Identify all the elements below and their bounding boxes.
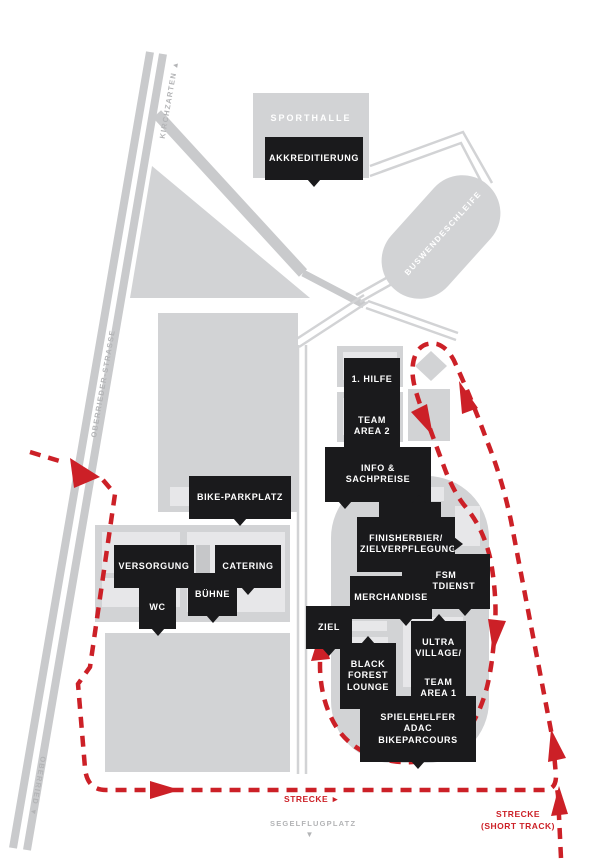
label-info-sachpreise: INFO & SACHPREISE	[325, 447, 431, 502]
label-text: BLACK FOREST LOUNGE	[347, 659, 389, 692]
arrow-diagonal-up	[548, 729, 566, 762]
label-text: VERSORGUNG	[118, 561, 189, 571]
event-site-map: SPORTHALLE BUSWENDESCHLEIFE KIRCHZARTEN …	[0, 0, 607, 862]
arrow-stadium-down	[488, 619, 506, 652]
label-text: ZIEL	[318, 622, 340, 632]
segelflugplatz-arrow-icon: ▼	[270, 830, 350, 839]
strecke-label: STRECKE ►	[282, 794, 342, 806]
label-text: MERCHANDISE	[354, 592, 428, 602]
arrow-strecke-right	[150, 781, 180, 799]
sporthalle-label: SPORTHALLE	[253, 113, 369, 123]
label-pointer-up	[432, 614, 446, 622]
label-pointer-down	[322, 648, 336, 656]
label-text: 1. HILFE	[352, 374, 393, 384]
label-merchandise: MERCHANDISE	[350, 576, 432, 619]
junction-east-road-b	[368, 301, 458, 333]
sporthalle-bus-road-outer	[370, 132, 492, 183]
label-text: TEAM AREA 2	[354, 415, 390, 437]
label-erste-hilfe: 1. HILFE	[344, 358, 400, 401]
junction-south-road-b	[295, 295, 364, 340]
label-pointer-down	[241, 587, 255, 595]
course-entry-dashes	[30, 452, 66, 463]
label-text: CATERING	[222, 561, 273, 571]
label-pointer-down	[206, 615, 220, 623]
label-pointer-down	[233, 518, 247, 526]
label-pointer-down	[338, 501, 352, 509]
label-wc: WC	[139, 586, 176, 629]
label-pointer-down	[411, 761, 425, 769]
label-pointer-up	[432, 654, 446, 662]
label-text: INFO & SACHPREISE	[346, 463, 411, 485]
junction-east-road-a	[366, 308, 456, 340]
strecke-short-track-label: STRECKE (SHORT TRACK)	[478, 809, 558, 833]
junction-south-road-a	[299, 302, 368, 347]
label-text: BÜHNE	[195, 589, 230, 599]
label-pointer-down	[307, 179, 321, 187]
label-pointer-up	[412, 495, 426, 503]
label-team-area-2: TEAM AREA 2	[344, 399, 400, 454]
label-text: FINISHERBIER/ ZIELVERPFLEGUNG	[360, 533, 456, 555]
label-spielehelfer: SPIELEHELFER ADAC BIKEPARCOURS	[360, 696, 476, 762]
bottom-left-field	[105, 633, 290, 772]
diamond-building	[415, 351, 447, 381]
label-text: AKKREDITIERUNG	[269, 153, 359, 163]
label-buehne: BÜHNE	[188, 573, 237, 616]
arrow-hairpin-up	[459, 381, 478, 414]
label-text: BIKE-PARKPLATZ	[197, 492, 283, 502]
label-bike-parkplatz: BIKE-PARKPLATZ	[189, 476, 291, 519]
label-akkreditierung: AKKREDITIERUNG	[265, 137, 363, 180]
label-pointer-up	[361, 636, 375, 644]
label-versorgung: VERSORGUNG	[114, 545, 194, 588]
label-text: SPIELEHELFER ADAC BIKEPARCOURS	[378, 712, 458, 745]
label-text: WC	[149, 602, 165, 612]
label-pointer-down	[151, 628, 165, 636]
label-pointer-down	[458, 608, 472, 616]
segelflugplatz-label: SEGELFLUGPLATZ	[270, 819, 350, 828]
label-pointer-right	[454, 537, 463, 551]
